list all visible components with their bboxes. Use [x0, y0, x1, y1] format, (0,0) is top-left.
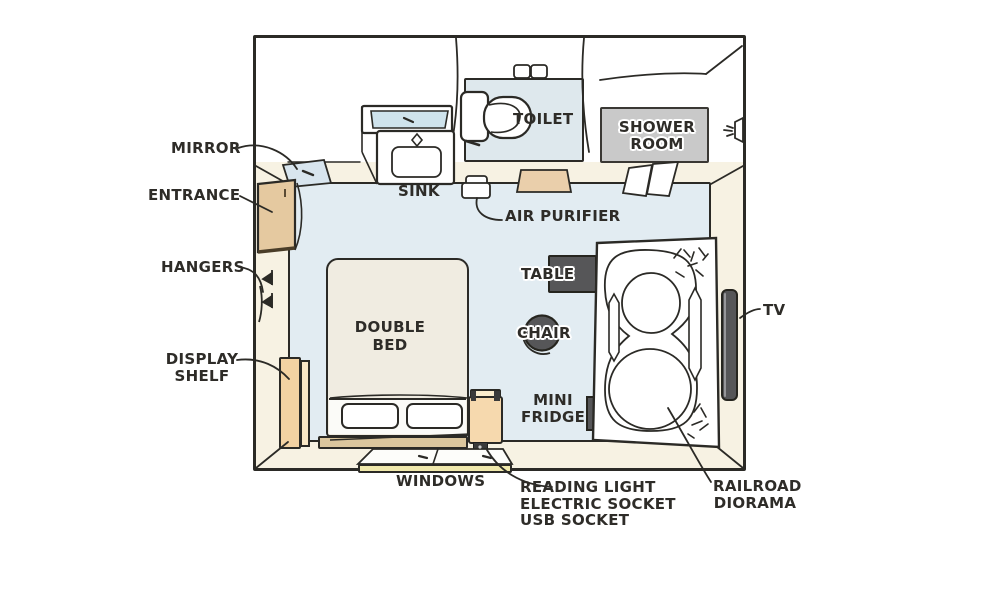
pillow — [341, 403, 399, 429]
air-purifier-label: AIR PURIFIER — [505, 208, 621, 225]
double-bed-label: DOUBLE BED — [349, 318, 431, 354]
tv-edge-highlight — [724, 293, 726, 397]
pillow — [406, 403, 463, 429]
mini-fridge — [586, 396, 599, 431]
shower-room-label: SHOWER ROOM — [617, 119, 697, 152]
hangers-label: HANGERS — [161, 259, 245, 276]
chair-label: CHAIR — [517, 325, 571, 342]
windows-label: WINDOWS — [396, 473, 485, 490]
entrance-label: ENTRANCE — [148, 187, 240, 204]
bedside-features-label: READING LIGHT ELECTRIC SOCKET USB SOCKET — [520, 479, 676, 529]
floor-plan-canvas: MIRROR ENTRANCE HANGERS DISPLAY SHELF SI… — [0, 0, 1008, 595]
display-shelf-label: DISPLAY SHELF — [163, 351, 241, 384]
mini-fridge-label: MINI FRIDGE — [521, 392, 585, 425]
table-label: TABLE — [521, 266, 574, 283]
nightstand — [468, 396, 503, 444]
display-shelf — [279, 357, 301, 449]
socket-panel — [473, 442, 488, 451]
railroad-diorama-label: RAILROAD DIORAMA — [713, 478, 797, 511]
headboard-shelf — [318, 436, 468, 449]
tv-label: TV — [763, 302, 785, 319]
display-shelf-side — [300, 360, 310, 447]
mirror-label: MIRROR — [171, 140, 241, 157]
sink-label: SINK — [398, 183, 440, 200]
toilet-label: TOILET — [513, 111, 573, 128]
